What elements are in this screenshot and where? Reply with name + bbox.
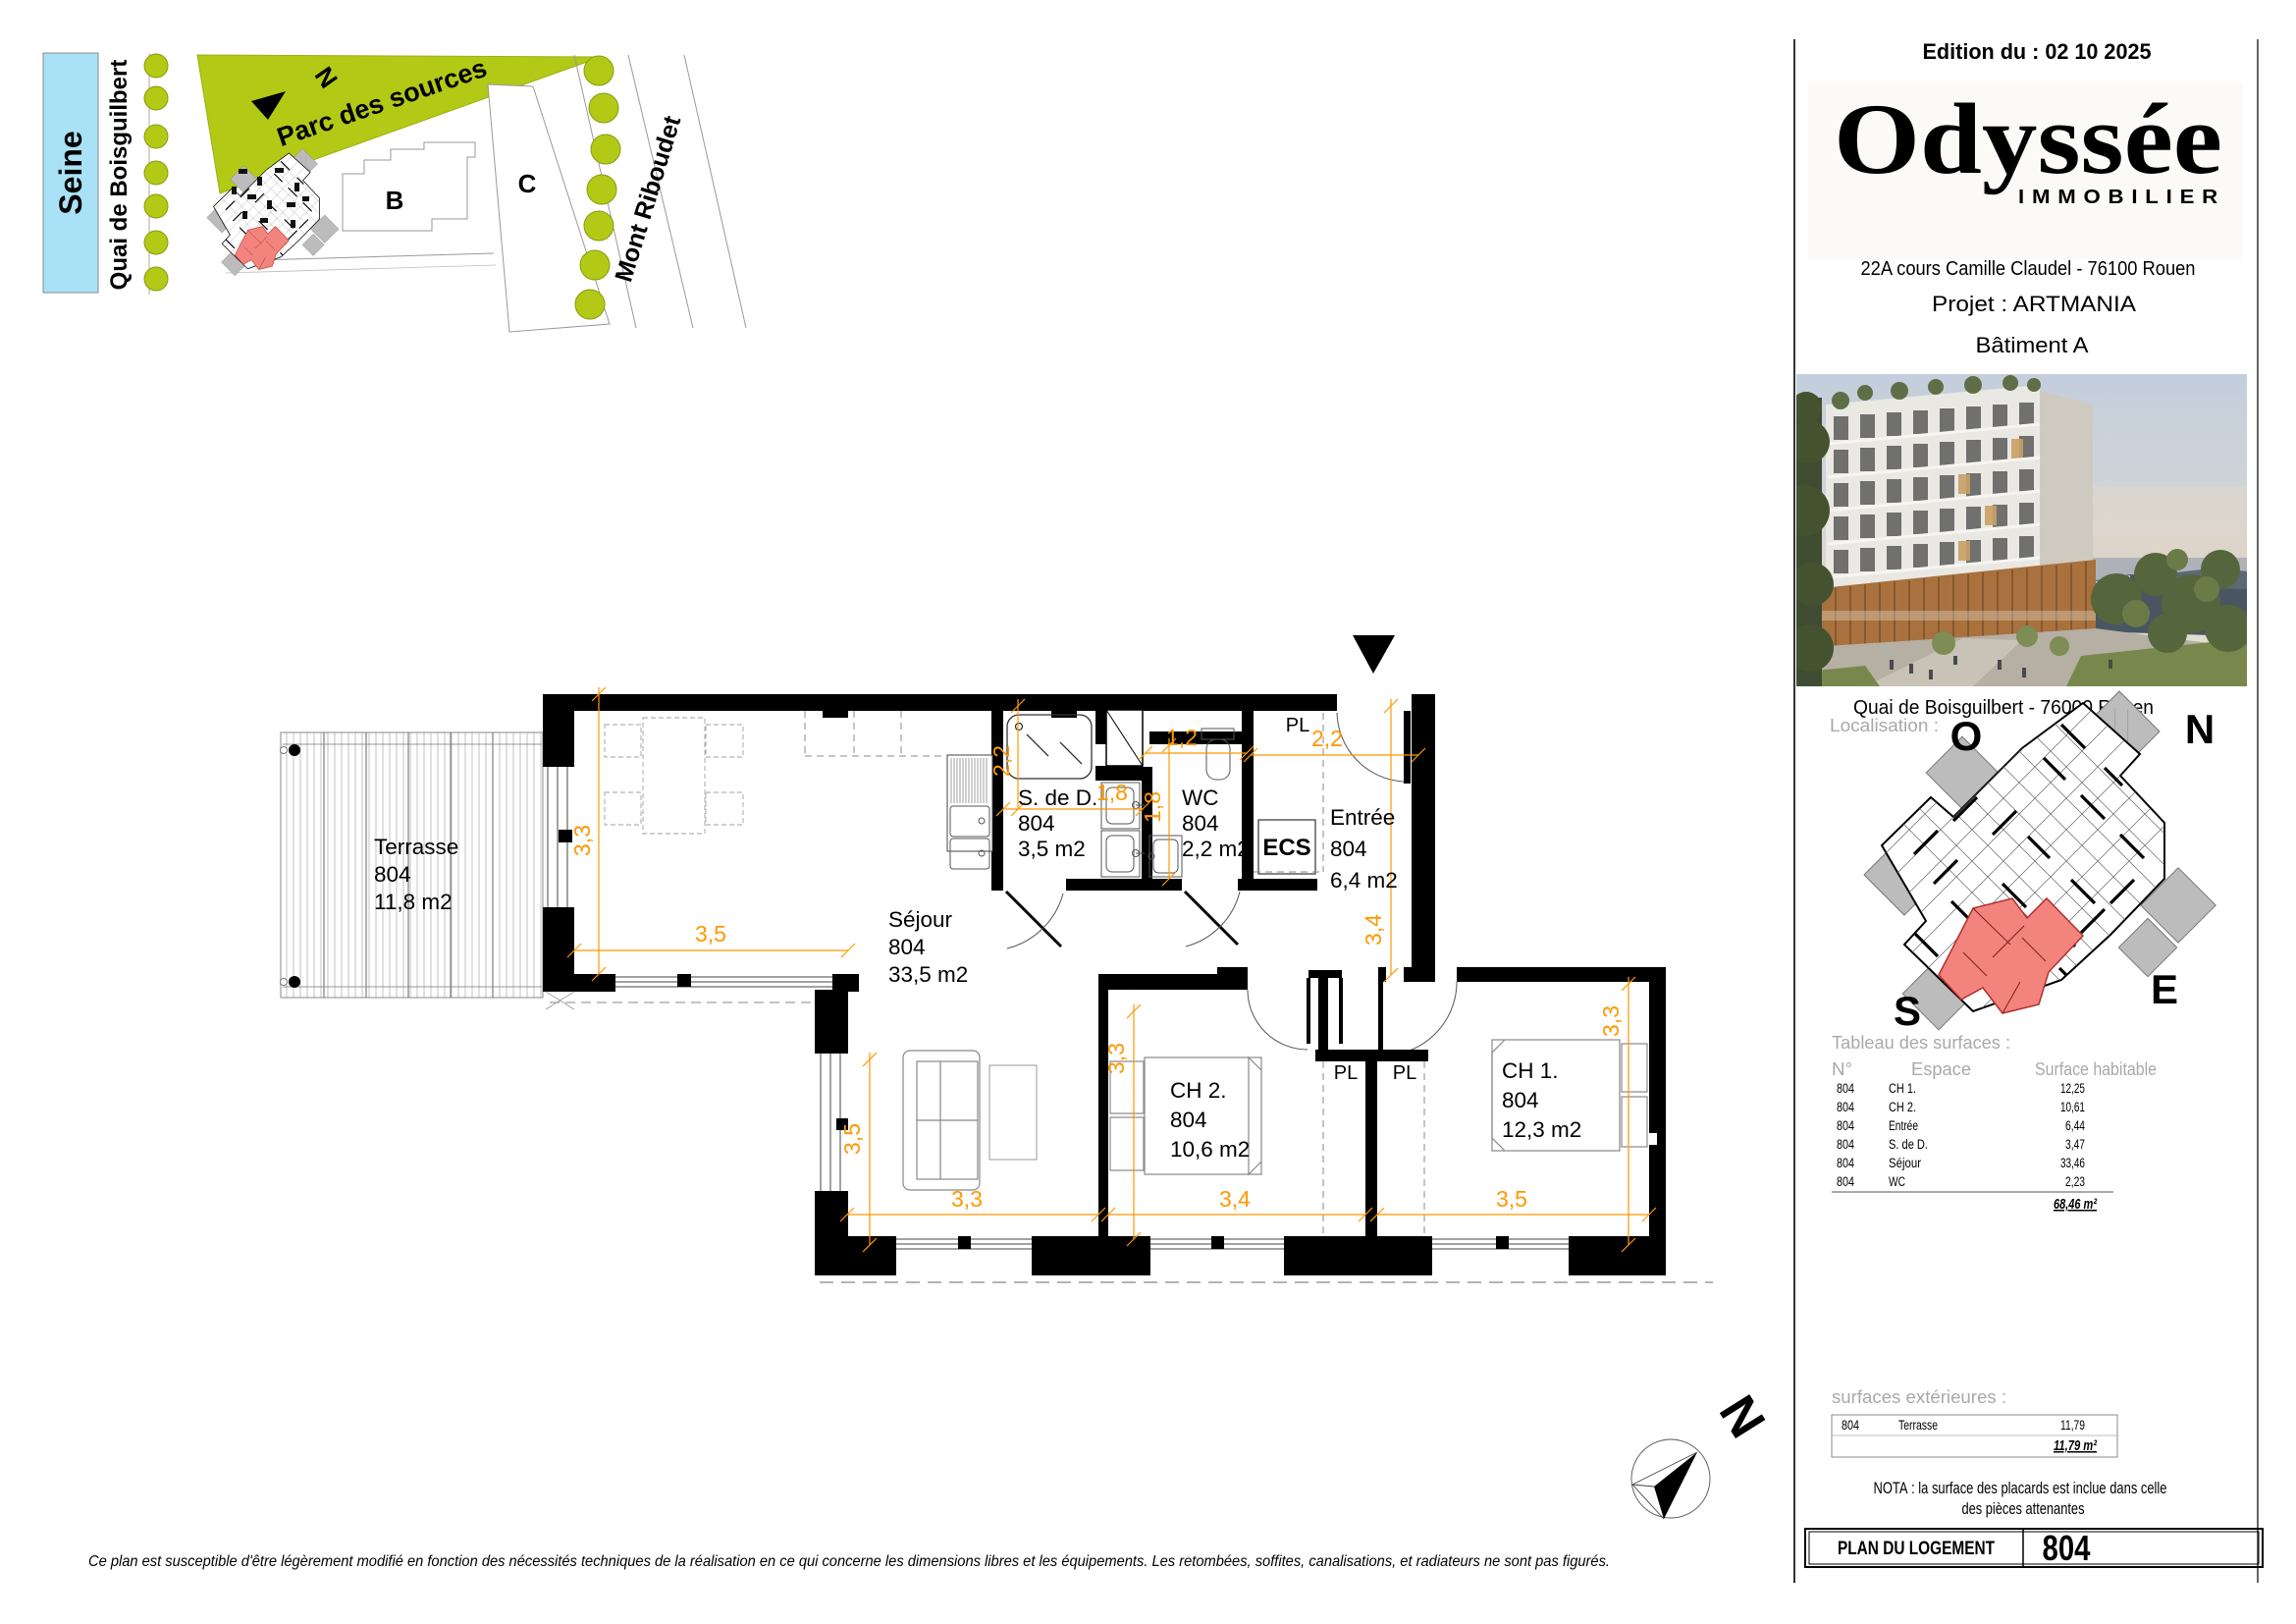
svg-text:PL: PL [1286,715,1309,736]
svg-text:804: 804 [374,862,411,887]
svg-text:Localisation :: Localisation : [1830,715,1939,735]
svg-text:3,3: 3,3 [569,825,595,856]
svg-text:C: C [518,169,537,198]
svg-text:Seine: Seine [53,131,88,214]
svg-text:S. de D.: S. de D. [1018,785,1097,810]
svg-text:33,46: 33,46 [2060,1156,2085,1170]
svg-text:S. de D.: S. de D. [1889,1137,1928,1152]
svg-text:Entrée: Entrée [1889,1118,1918,1133]
svg-text:Terrasse: Terrasse [374,835,458,859]
svg-text:2,23: 2,23 [2065,1174,2085,1189]
svg-text:N: N [2185,706,2215,752]
svg-text:Séjour: Séjour [1889,1156,1921,1170]
svg-text:ECS: ECS [1262,835,1310,861]
svg-text:3,47: 3,47 [2065,1137,2085,1152]
svg-text:PL: PL [1334,1062,1358,1084]
svg-text:6,4 m2: 6,4 m2 [1330,868,1398,893]
svg-text:2,2: 2,2 [1311,726,1343,751]
svg-text:3,3: 3,3 [1598,1005,1624,1037]
svg-text:CH 1.: CH 1. [1502,1058,1559,1083]
svg-text:3,5: 3,5 [1496,1186,1527,1212]
svg-text:6,44: 6,44 [2065,1118,2085,1133]
svg-text:1,8: 1,8 [1096,780,1128,805]
svg-text:CH 2.: CH 2. [1170,1078,1227,1103]
svg-text:surfaces extérieures :: surfaces extérieures : [1832,1386,2006,1407]
svg-text:804: 804 [1837,1081,1854,1096]
svg-text:3,5 m2: 3,5 m2 [1018,837,1086,861]
svg-text:3,4: 3,4 [1361,914,1386,946]
svg-text:Bâtiment A: Bâtiment A [1976,333,2089,357]
svg-text:3,5: 3,5 [839,1123,865,1155]
svg-text:804: 804 [1837,1137,1854,1152]
svg-text:Espace: Espace [1911,1058,1971,1079]
svg-text:PLAN DU LOGEMENT: PLAN DU LOGEMENT [1838,1539,1995,1559]
svg-text:E: E [2151,966,2178,1012]
svg-text:12,3 m2: 12,3 m2 [1502,1117,1581,1142]
svg-text:68,46 m²: 68,46 m² [2054,1196,2098,1213]
svg-text:3,3: 3,3 [1103,1043,1129,1074]
svg-text:PL: PL [1393,1062,1416,1084]
svg-text:Surface habitable: Surface habitable [2035,1058,2157,1079]
svg-text:des pièces attenantes: des pièces attenantes [1962,1499,2085,1518]
svg-text:22A cours Camille Claudel - 76: 22A cours Camille Claudel - 76100 Rouen [1861,258,2196,280]
svg-text:1,2: 1,2 [1166,725,1198,750]
svg-text:Projet : ARTMANIA: Projet : ARTMANIA [1932,292,2136,316]
svg-text:NOTA : la surface des placards: NOTA : la surface des placards est inclu… [1874,1479,2167,1497]
svg-text:Tableau des surfaces :: Tableau des surfaces : [1832,1032,2010,1053]
svg-text:Entrée: Entrée [1330,805,1395,830]
svg-text:B: B [386,186,404,215]
svg-text:804: 804 [1330,837,1367,861]
svg-text:11,8 m2: 11,8 m2 [374,890,453,914]
svg-text:804: 804 [1018,811,1055,836]
svg-text:11,79 m²: 11,79 m² [2054,1437,2098,1454]
svg-text:Odyssée: Odyssée [1834,83,2222,195]
svg-text:11,79: 11,79 [2060,1418,2085,1433]
svg-text:2,2: 2,2 [988,745,1014,777]
svg-text:Terrasse: Terrasse [1898,1418,1938,1433]
svg-text:O: O [1950,713,1983,759]
svg-text:Edition du : 02 10 2025: Edition du : 02 10 2025 [1923,39,2152,64]
svg-text:Séjour: Séjour [888,907,953,932]
svg-text:S: S [1894,988,1921,1034]
svg-text:Quai de Boisguilbert: Quai de Boisguilbert [106,60,133,291]
svg-text:N°: N° [1832,1058,1852,1079]
svg-text:10,6 m2: 10,6 m2 [1170,1137,1250,1162]
svg-text:12,25: 12,25 [2060,1081,2085,1096]
svg-text:804: 804 [1837,1118,1854,1133]
svg-text:804: 804 [1837,1174,1854,1189]
svg-text:804: 804 [1502,1088,1539,1112]
svg-text:804: 804 [1182,811,1219,836]
svg-text:804: 804 [888,935,926,959]
svg-text:804: 804 [1842,1418,1859,1433]
svg-text:804: 804 [2043,1528,2091,1568]
svg-text:CH 2.: CH 2. [1889,1100,1916,1114]
svg-text:3,4: 3,4 [1219,1186,1251,1212]
svg-text:3,5: 3,5 [695,921,726,947]
svg-text:IMMOBILIER: IMMOBILIER [2018,187,2225,208]
svg-text:804: 804 [1170,1108,1207,1132]
svg-text:3,3: 3,3 [951,1186,983,1212]
svg-text:WC: WC [1182,785,1219,810]
svg-text:WC: WC [1889,1174,1905,1189]
svg-text:804: 804 [1837,1156,1854,1170]
svg-text:10,61: 10,61 [2060,1100,2085,1114]
svg-text:Ce plan est susceptible d'être: Ce plan est susceptible d'être légèremen… [88,1553,1610,1570]
svg-text:33,5 m2: 33,5 m2 [888,962,968,987]
svg-text:1,8: 1,8 [1140,791,1165,823]
svg-text:2,2 m2: 2,2 m2 [1182,837,1250,861]
svg-text:CH 1.: CH 1. [1889,1081,1916,1096]
svg-text:804: 804 [1837,1100,1854,1114]
